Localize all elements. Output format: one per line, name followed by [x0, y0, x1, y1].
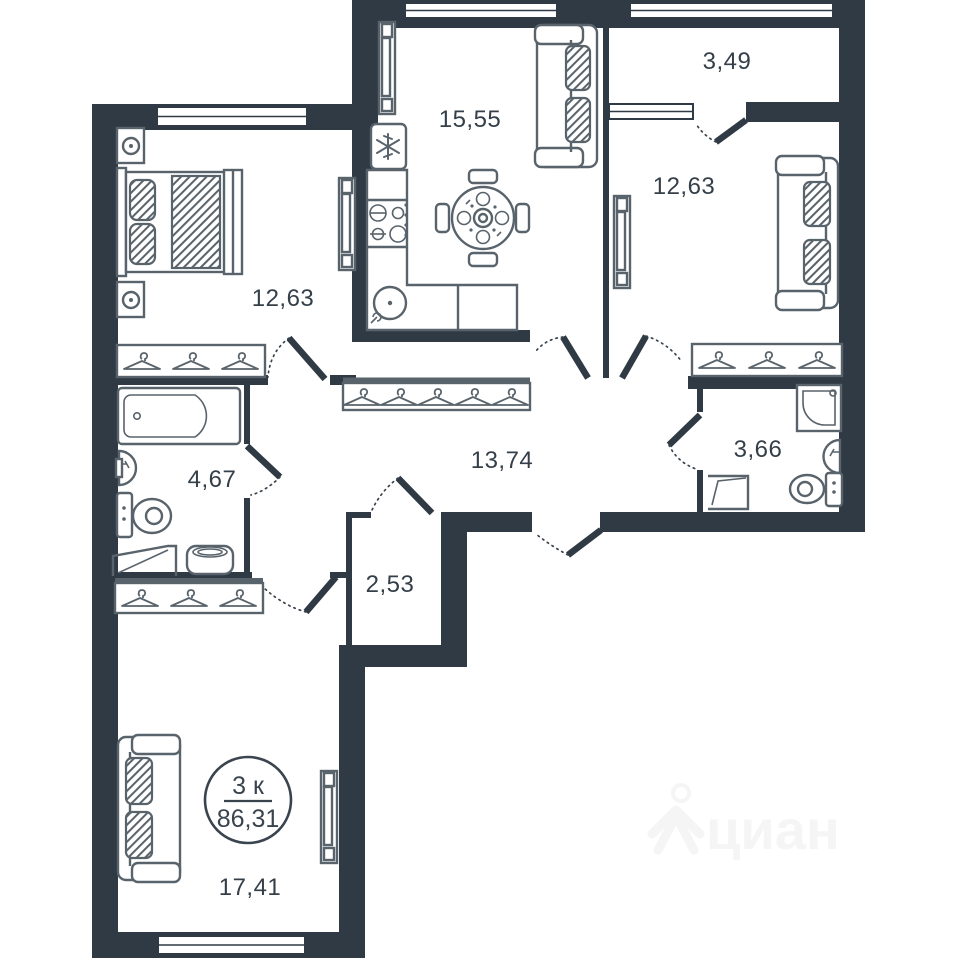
label-kitchen-living: 15,55 — [439, 106, 502, 133]
door-wc-shower — [669, 415, 700, 469]
badge-total-area: 86,31 — [217, 805, 280, 833]
label-hallway: 13,74 — [471, 447, 534, 474]
fridge-icon — [371, 124, 406, 169]
washbasin-icon — [824, 440, 841, 473]
label-bathroom: 4,67 — [188, 466, 237, 493]
window — [405, 3, 557, 18]
door-bedroom-right — [622, 336, 682, 378]
watermark-text: циан — [706, 798, 840, 861]
tv-icon — [321, 771, 337, 863]
tv-icon — [614, 196, 630, 288]
entrance-door — [536, 530, 601, 555]
label-wc-shower: 3,66 — [734, 436, 783, 463]
floor-plan: 3 к 86,31 15,55 3,49 12,63 12,63 13,74 4… — [0, 0, 960, 960]
badge-rooms: 3 к — [232, 772, 265, 800]
tv-icon — [339, 178, 355, 270]
wardrobe-icon — [692, 344, 842, 376]
living-room-furniture: 3 к 86,31 — [118, 735, 337, 882]
brand-watermark: циан — [652, 785, 840, 861]
window — [158, 936, 305, 954]
label-storage: 2,53 — [366, 571, 415, 598]
door-bedroom-left — [268, 338, 325, 379]
wardrobe-icon — [115, 580, 263, 613]
toilet-icon — [790, 473, 842, 506]
pillow-icon — [130, 224, 155, 264]
label-bedroom-right: 12,63 — [653, 173, 716, 200]
bedroom-right-furniture — [614, 156, 842, 376]
bedroom-left-furniture — [117, 128, 355, 377]
dining-table-icon — [436, 170, 529, 266]
shower-icon — [797, 385, 841, 431]
circle-mark-icon — [673, 785, 689, 801]
window — [630, 3, 833, 18]
door-bathroom — [247, 446, 280, 495]
sofa-icon — [776, 156, 838, 310]
cabinet-icon — [708, 476, 748, 509]
window — [609, 104, 693, 119]
blanket — [172, 176, 220, 268]
bathtub-icon — [118, 388, 240, 444]
sofa-icon — [118, 735, 180, 882]
pillow-icon — [130, 180, 155, 220]
label-living-room: 17,41 — [219, 874, 282, 901]
door-kitchen — [536, 337, 588, 378]
apartment-badge: 3 к 86,31 — [205, 757, 291, 843]
label-bedroom-left: 12,63 — [252, 285, 315, 312]
nightstand-icon — [117, 128, 144, 163]
bed-icon — [117, 168, 242, 276]
washbasin-icon — [116, 451, 136, 485]
kitchen-furniture — [367, 22, 597, 330]
nightstand-icon — [117, 282, 144, 317]
label-loggia: 3,49 — [703, 48, 752, 75]
wardrobe-icon — [343, 380, 530, 410]
toilet-icon — [117, 493, 171, 537]
window — [157, 107, 307, 126]
house-person-icon — [652, 810, 700, 850]
door-storage — [372, 478, 432, 513]
door-living-room — [264, 577, 336, 612]
door-loggia — [696, 120, 746, 142]
laundry-basket-icon — [187, 546, 233, 574]
wardrobe-icon — [117, 345, 265, 377]
sofa-icon — [535, 25, 597, 167]
cabinet-icon — [113, 546, 176, 576]
tv-icon — [379, 22, 395, 114]
